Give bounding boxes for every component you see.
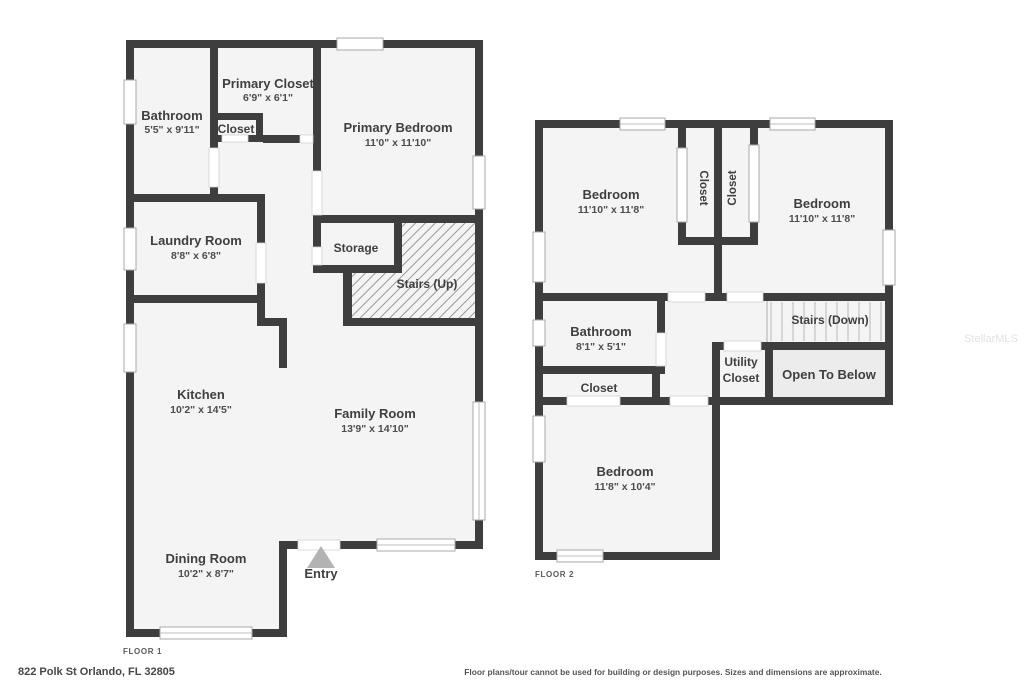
- room-dims-bathroom-2: 8'1" x 5'1": [576, 341, 626, 353]
- room-dims-primary-bedroom: 11'0" x 11'10": [365, 137, 431, 149]
- room-dims-primary-closet: 6'9" x 6'1": [243, 92, 293, 104]
- floor1-label: FLOOR 1: [123, 647, 162, 656]
- room-label-utility-line1: Utility: [724, 355, 758, 369]
- room-label-bathroom-1: Bathroom: [141, 108, 202, 123]
- room-label-primary-bedroom: Primary Bedroom: [343, 120, 452, 135]
- room-label-closet-left: Closet: [697, 170, 709, 205]
- property-address: 822 Polk St Orlando, FL 32805: [18, 666, 175, 678]
- entry-label: Entry: [304, 566, 338, 581]
- watermark: StellarMLS: [964, 333, 1018, 345]
- room-dims-laundry: 8'8" x 6'8": [171, 250, 221, 262]
- room-label-closet-1: Closet: [218, 122, 255, 136]
- room-label-open-to-below: Open To Below: [782, 367, 877, 382]
- room-label-bathroom-2: Bathroom: [570, 324, 631, 339]
- room-dims-bedroom-right: 11'10" x 11'8": [789, 213, 855, 225]
- room-label-kitchen: Kitchen: [177, 387, 225, 402]
- room-dims-kitchen: 10'2" x 14'5": [170, 404, 232, 416]
- room-label-bedroom-right: Bedroom: [793, 196, 850, 211]
- floor-plan-page: Bathroom 5'5" x 9'11" Primary Closet 6'9…: [0, 0, 1024, 682]
- room-label-closet-right: Closet: [727, 170, 739, 205]
- room-label-closet-bottom: Closet: [581, 381, 618, 395]
- room-dims-bathroom-1: 5'5" x 9'11": [144, 124, 199, 136]
- room-dims-dining: 10'2" x 8'7": [178, 568, 234, 580]
- room-label-primary-closet: Primary Closet: [222, 76, 314, 91]
- floor1-plan: Bathroom 5'5" x 9'11" Primary Closet 6'9…: [123, 38, 485, 656]
- room-dims-bedroom-bottom: 11'8" x 10'4": [594, 481, 655, 493]
- room-label-storage: Storage: [334, 241, 379, 255]
- room-dims-family: 13'9" x 14'10": [341, 423, 409, 435]
- room-label-utility-line2: Closet: [723, 371, 760, 385]
- floor2-label: FLOOR 2: [535, 570, 574, 579]
- closet-left-slider: [677, 148, 687, 222]
- floor2-plan: Bedroom 11'10" x 11'8" Closet Closet Bed…: [533, 118, 895, 579]
- room-dims-bedroom-left: 11'10" x 11'8": [578, 204, 644, 216]
- floor-plan-svg: Bathroom 5'5" x 9'11" Primary Closet 6'9…: [0, 0, 1024, 682]
- room-label-bedroom-left: Bedroom: [582, 187, 639, 202]
- room-label-bedroom-bottom: Bedroom: [596, 464, 653, 479]
- room-label-laundry: Laundry Room: [150, 233, 242, 248]
- closet-right-slider: [749, 145, 759, 222]
- room-label-stairs-down: Stairs (Down): [791, 313, 868, 327]
- disclaimer-text: Floor plans/tour cannot be used for buil…: [464, 667, 881, 677]
- room-label-dining: Dining Room: [166, 551, 247, 566]
- entry-opening: [298, 540, 340, 550]
- room-label-stairs-up: Stairs (Up): [397, 277, 458, 291]
- room-label-family: Family Room: [334, 406, 416, 421]
